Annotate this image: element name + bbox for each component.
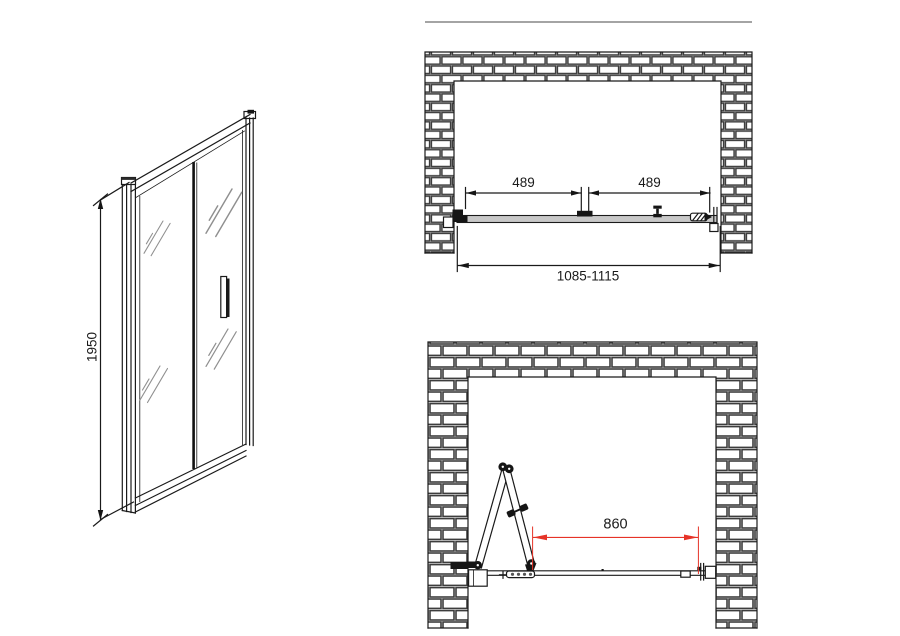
left-panel-width-label: 489	[512, 175, 535, 190]
folded-panel-left	[475, 467, 510, 568]
opening-width-range-label: 1085-1115	[557, 269, 620, 284]
left-jamb	[122, 185, 135, 514]
door-frame	[122, 110, 256, 513]
extension-lines	[466, 188, 710, 213]
right-wall-profile	[705, 566, 715, 578]
door-handle	[221, 277, 230, 318]
brick-wall-right	[716, 342, 757, 628]
extension-line-bottom	[101, 502, 134, 520]
brick-lintel	[428, 342, 757, 377]
right-jamb	[246, 118, 253, 446]
panel-width-dimensions: 489 489	[466, 175, 711, 212]
top-rail	[131, 115, 250, 198]
door-knob	[653, 206, 661, 218]
left-wall-profile	[444, 217, 454, 228]
door-track	[457, 216, 717, 223]
folded-door-panels	[467, 462, 536, 569]
entry-width-dimension: 860	[533, 517, 699, 575]
track-stop	[602, 569, 604, 571]
opening-inner-boundary	[454, 81, 721, 253]
bottom-rail	[135, 444, 246, 512]
brick-wall-right	[721, 52, 752, 253]
technical-drawing-page: 1950	[0, 0, 900, 636]
left-bracket	[453, 210, 468, 223]
plan-view-door-closed: 489 489 1085-1115	[425, 22, 752, 284]
folded-panel-right	[503, 467, 535, 565]
brick-wall-left	[428, 342, 468, 628]
front-elevation-view: 1950	[85, 110, 256, 526]
opening-inner-boundary	[468, 377, 716, 628]
left-wall-profile	[469, 570, 488, 586]
center-pivot-bracket	[577, 211, 593, 217]
right-panel-width-label: 489	[638, 175, 661, 190]
opening-width-dimension: 1085-1115	[457, 227, 720, 284]
shower-door-installation-diagram: 1950	[0, 0, 900, 636]
plan-view-door-open: 860	[428, 342, 757, 628]
left-jamb-cap-top	[122, 178, 136, 180]
entry-width-label: 860	[603, 517, 627, 533]
brick-lintel	[425, 52, 752, 81]
right-jamb-cap-top	[248, 110, 255, 114]
height-dimension-label: 1950	[85, 332, 100, 362]
extension-line-top	[101, 183, 130, 201]
door-track	[451, 562, 717, 586]
left-wall-bracket	[451, 562, 469, 569]
